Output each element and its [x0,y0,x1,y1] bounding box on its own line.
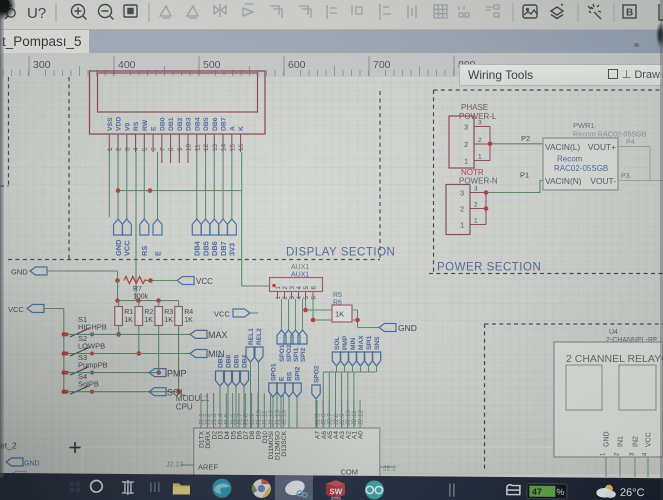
svg-text:Recom RAC02-05SGB: Recom RAC02-05SGB [573,130,647,139]
svg-text:R3: R3 [164,309,173,316]
svg-text:9: 9 [177,147,184,151]
svg-text:SOL: SOL [334,336,341,350]
svg-text:A: A [229,126,236,131]
svg-text:47: 47 [532,486,542,496]
svg-text:DB4: DB4 [194,117,201,131]
svg-text:SPI2: SPI2 [300,347,307,362]
svg-text:DISPLAY SECTION: DISPLAY SECTION [286,247,395,259]
svg-text:GND: GND [11,268,28,277]
svg-text:SPI1: SPI1 [293,347,300,362]
svg-text:12: 12 [203,143,210,151]
svg-text:DB4: DB4 [242,354,249,368]
svg-text:VCC: VCC [123,240,132,256]
svg-text:2: 2 [116,147,123,151]
svg-text:2 CHANNEL RELAY-5: 2 CHANNEL RELAY-5 [566,353,663,365]
svg-text:VCC: VCC [8,305,24,314]
svg-text:E: E [151,126,158,131]
svg-text:SW: SW [329,487,342,496]
svg-text:2: 2 [464,142,468,149]
svg-text:VCC: VCC [196,277,213,286]
svg-text:RS: RS [287,371,294,381]
svg-text:500: 500 [203,59,221,71]
svg-text:VCC: VCC [214,310,230,319]
svg-text:VOUT-: VOUT- [590,176,616,186]
svg-text:E: E [153,251,162,256]
svg-text:6: 6 [311,286,317,290]
svg-text:P4: P4 [626,139,635,146]
svg-text:DB6: DB6 [210,241,219,256]
svg-text:U?: U? [27,5,46,22]
svg-text:VSS: VSS [107,117,114,131]
svg-text:REL1: REL1 [248,328,255,345]
svg-text:SPO2: SPO2 [314,365,321,383]
svg-text:6: 6 [151,147,158,151]
svg-text:DB1: DB1 [168,117,175,131]
svg-text:VDD: VDD [116,117,123,131]
svg-text:6: 6 [311,296,317,300]
svg-text:2: 2 [283,296,289,300]
svg-text:1K: 1K [335,310,344,319]
svg-text:B: B [626,8,633,19]
svg-text:DB5: DB5 [203,117,210,131]
svg-text:D13SCK: D13SCK [281,430,288,456]
svg-text:10: 10 [186,143,193,151]
svg-text:SolPB: SolPB [78,380,99,389]
svg-text:5: 5 [304,286,310,290]
svg-text:PMP: PMP [167,369,187,379]
svg-text:DB6: DB6 [212,117,219,131]
svg-text:J2.15: J2.15 [281,409,288,425]
svg-text:PumpPB: PumpPB [78,361,108,370]
svg-text:DB7: DB7 [218,354,225,368]
svg-text:14: 14 [221,143,228,151]
svg-text:GND: GND [24,461,40,468]
svg-text:RW: RW [142,119,149,131]
svg-text:3: 3 [460,191,464,198]
svg-text:DB7: DB7 [221,117,228,131]
svg-text:4: 4 [133,147,140,151]
svg-text:1K: 1K [164,317,173,324]
svg-text:2: 2 [283,286,289,290]
svg-text:R5: R5 [333,292,342,299]
svg-text:100k: 100k [133,294,149,301]
svg-text:R2: R2 [144,309,153,316]
svg-text:P1: P1 [520,171,529,180]
svg-text:11: 11 [194,144,201,151]
svg-text:3V3: 3V3 [228,243,237,256]
svg-text:IN1: IN1 [618,436,625,447]
svg-text:VCC: VCC [646,432,653,447]
svg-text:400: 400 [118,59,136,71]
svg-text:CPU: CPU [176,403,193,412]
svg-text:5: 5 [142,147,149,151]
svg-text:SPI2: SPI2 [295,366,302,381]
svg-text:1: 1 [478,154,482,161]
svg-text:1K: 1K [124,317,133,324]
svg-text:2016: 2016 [331,496,342,500]
svg-text:LOWPB: LOWPB [78,342,105,351]
svg-text:VACIN(L): VACIN(L) [545,142,580,152]
svg-text:1: 1 [464,159,468,166]
svg-text:J2.13: J2.13 [166,462,183,469]
svg-text:RS: RS [140,246,149,256]
svg-text:MAX: MAX [358,335,365,350]
svg-text:3: 3 [474,186,478,193]
svg-text:RS: RS [133,121,140,131]
svg-text:A0: A0 [358,431,365,439]
svg-text:700: 700 [373,59,391,71]
svg-text:DB2: DB2 [177,117,184,131]
svg-text:V0: V0 [124,122,131,131]
svg-text:3: 3 [124,147,131,151]
svg-text:1: 1 [474,218,478,225]
svg-text:26°C: 26°C [620,486,645,498]
svg-text:RAC02-05SGB: RAC02-05SGB [554,164,608,173]
svg-text:2: 2 [460,207,464,214]
svg-text:7: 7 [159,147,166,151]
svg-text:3: 3 [478,120,482,127]
svg-text:HIGHPB: HIGHPB [78,322,107,331]
svg-text:4: 4 [297,296,303,300]
svg-text:DB3: DB3 [186,117,193,131]
svg-text:VACIN(N): VACIN(N) [545,176,582,186]
svg-text:AREF: AREF [198,463,218,472]
svg-text:2: 2 [474,202,478,209]
svg-text:4: 4 [297,286,303,290]
svg-text:DB5: DB5 [234,354,241,368]
svg-text:300: 300 [33,59,51,71]
svg-text:DB4: DB4 [193,240,202,256]
svg-text:DB0: DB0 [159,117,166,131]
svg-text:SNS: SNS [374,336,381,350]
svg-text:2: 2 [478,137,482,144]
svg-text:E: E [279,376,286,381]
svg-text:1: 1 [107,147,114,151]
svg-text:1: 1 [276,286,282,290]
svg-text:Recom: Recom [557,155,583,164]
svg-text:PHASE: PHASE [461,103,488,112]
svg-text:AUX1: AUX1 [291,264,309,271]
svg-text:SPO1: SPO1 [279,344,286,362]
svg-text:REL2: REL2 [256,328,263,345]
svg-text:K: K [238,126,245,131]
svg-text:R1: R1 [124,309,133,316]
svg-text:P2: P2 [521,134,530,143]
svg-text:U4: U4 [609,329,618,336]
svg-text:GND: GND [398,323,417,333]
svg-text:13: 13 [212,143,219,151]
svg-text:DB7: DB7 [219,241,228,256]
svg-text:J2.12: J2.12 [357,409,364,425]
svg-text:P3: P3 [621,173,630,180]
svg-text:SPO1: SPO1 [271,363,278,381]
svg-text:IN2: IN2 [633,436,640,447]
svg-text:3: 3 [290,296,296,300]
svg-text:3: 3 [290,286,296,290]
svg-text:R4: R4 [184,309,193,316]
svg-text:5: 5 [304,296,310,300]
svg-text:1: 1 [460,223,464,230]
svg-text:MAX: MAX [208,330,228,340]
svg-text:PMP: PMP [342,335,349,350]
svg-text:1: 1 [276,296,282,300]
svg-text:16: 16 [238,143,245,151]
svg-text:%: % [556,486,564,496]
svg-text:VOUT+: VOUT+ [588,142,616,152]
svg-text:8: 8 [168,147,175,151]
svg-text:1K: 1K [144,317,153,324]
svg-text:POWER SECTION: POWER SECTION [437,262,541,274]
svg-text:DB5: DB5 [201,241,210,256]
svg-text:R7: R7 [133,286,142,293]
svg-text:3: 3 [464,125,468,132]
svg-text:MIN: MIN [350,338,357,350]
svg-text:DB6: DB6 [226,354,233,368]
svg-text:SPO2: SPO2 [286,344,293,362]
svg-text:15: 15 [229,143,236,151]
svg-text:GND: GND [114,239,123,256]
svg-text:600: 600 [288,59,306,71]
svg-text:SPI1: SPI1 [366,335,373,350]
svg-text:GND: GND [604,431,611,447]
svg-text:1K: 1K [184,317,193,324]
